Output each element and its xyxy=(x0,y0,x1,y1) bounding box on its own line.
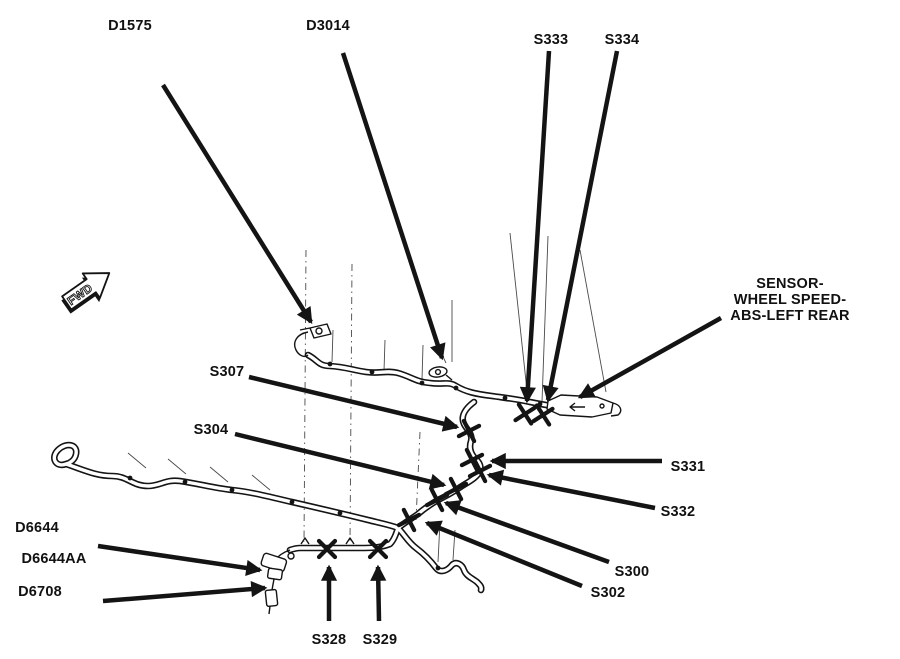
label-s332: S332 xyxy=(661,504,696,520)
arrow-d1575 xyxy=(163,85,311,322)
arrow-s300 xyxy=(446,503,609,562)
label-s300: S300 xyxy=(615,564,650,580)
label-abs-sensor-line2: WHEEL SPEED- xyxy=(734,292,847,308)
arrow-s334 xyxy=(548,51,617,400)
label-s329: S329 xyxy=(363,632,398,648)
label-d1575: D1575 xyxy=(108,18,152,34)
connector-d3014-fitting xyxy=(428,366,452,380)
diagram-canvas: D1575 D3014 S333 S334 S307 S304 S331 S33… xyxy=(0,0,900,659)
callout-arrows xyxy=(98,51,721,621)
arrow-s332 xyxy=(489,475,655,508)
label-abs-sensor-line1: SENSOR- xyxy=(756,276,823,292)
label-s333: S333 xyxy=(534,32,569,48)
arrow-s333 xyxy=(527,51,549,401)
label-s304: S304 xyxy=(194,422,229,438)
arrow-s329 xyxy=(378,567,379,621)
label-d6644aa: D6644AA xyxy=(21,551,86,567)
label-s328: S328 xyxy=(312,632,347,648)
label-d6644: D6644 xyxy=(15,520,59,536)
fwd-direction-marker: FWD xyxy=(56,261,120,320)
label-d6708: D6708 xyxy=(18,584,62,600)
splice-x-s334 xyxy=(534,406,553,425)
arrow-d6708 xyxy=(103,588,265,601)
connector-d6644-stack xyxy=(260,550,294,614)
label-abs-sensor: SENSOR- WHEEL SPEED- ABS-LEFT REAR xyxy=(730,276,850,324)
label-d3014: D3014 xyxy=(306,18,350,34)
label-s331: S331 xyxy=(671,459,706,475)
label-s302: S302 xyxy=(591,585,626,601)
arrow-abs-sensor xyxy=(580,318,721,397)
abs-sensor-fitting xyxy=(547,395,621,417)
arrow-d6644 xyxy=(98,546,260,570)
connector-d1575-fitting xyxy=(295,324,331,356)
underbody-wiring-diagram: D1575 D3014 S333 S334 S307 S304 S331 S33… xyxy=(0,0,900,659)
arrow-s304 xyxy=(235,434,444,485)
label-s307: S307 xyxy=(210,364,245,380)
label-s334: S334 xyxy=(605,32,640,48)
arrow-d3014 xyxy=(343,53,442,358)
label-abs-sensor-line3: ABS-LEFT REAR xyxy=(730,308,850,324)
arrow-s302 xyxy=(427,523,582,586)
